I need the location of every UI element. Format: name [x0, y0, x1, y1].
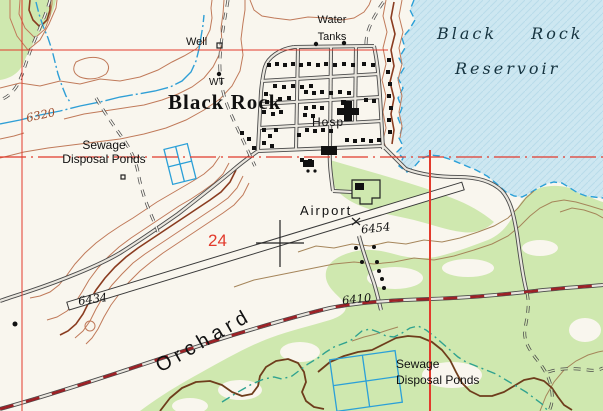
water-tanks-label-line1: Water: [306, 14, 358, 26]
reservoir-label-line2: Reservoir: [455, 59, 560, 78]
reservoir-label-line1: Black Rock: [437, 24, 584, 43]
water-tanks-label-line2: Tanks: [306, 31, 358, 43]
town-label: Black Rock: [168, 90, 281, 115]
map-canvas[interactable]: Black Rock Black Rock Reservoir Well WT …: [0, 0, 603, 411]
water-tank-symbol: [217, 72, 221, 76]
sewage-west-line2: Disposal Ponds: [40, 152, 168, 166]
section-number-label: 24: [208, 231, 227, 251]
water-tank-abbr-label: WT: [209, 77, 225, 88]
airport-label: Airport: [300, 203, 352, 218]
well-label: Well: [186, 36, 207, 48]
sewage-ponds-west-label: Sewage Disposal Ponds: [40, 138, 168, 166]
sewage-west-line1: Sewage: [40, 138, 168, 152]
hospital-label: Hosp: [312, 115, 344, 129]
sewage-south-line1: Sewage: [396, 356, 479, 372]
school-building: [321, 146, 337, 155]
sewage-south-line2: Disposal Ponds: [396, 372, 479, 388]
sewage-ponds-south-label: Sewage Disposal Ponds: [396, 356, 479, 388]
